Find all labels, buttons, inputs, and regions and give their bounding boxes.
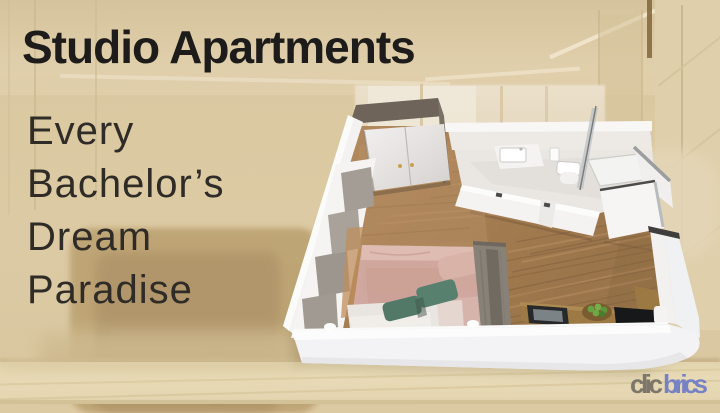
svg-text:clicbrics: clicbrics [630,369,708,399]
